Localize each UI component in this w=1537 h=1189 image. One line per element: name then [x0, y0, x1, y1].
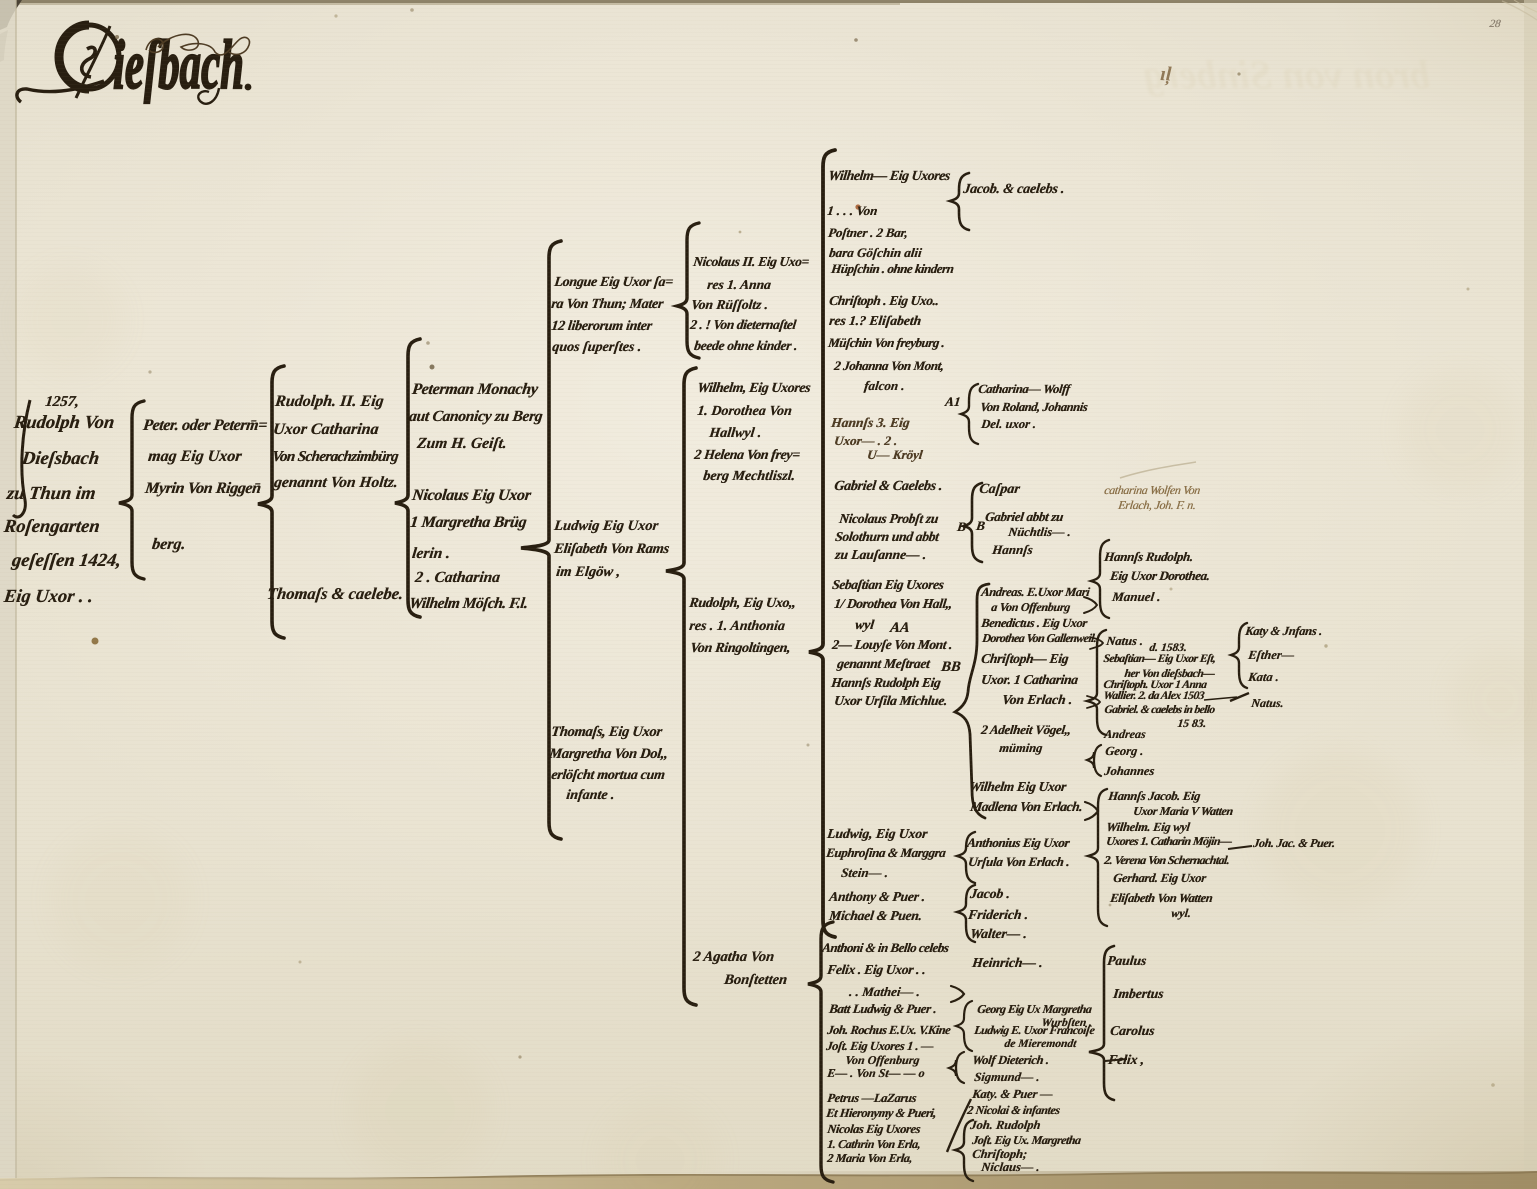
- svg-text:ieſbach: ieſbach: [113, 25, 244, 103]
- svg-text:bron von Sinberg: bron von Sinberg: [1143, 52, 1430, 97]
- svg-text:ıļ: ıļ: [1160, 63, 1173, 87]
